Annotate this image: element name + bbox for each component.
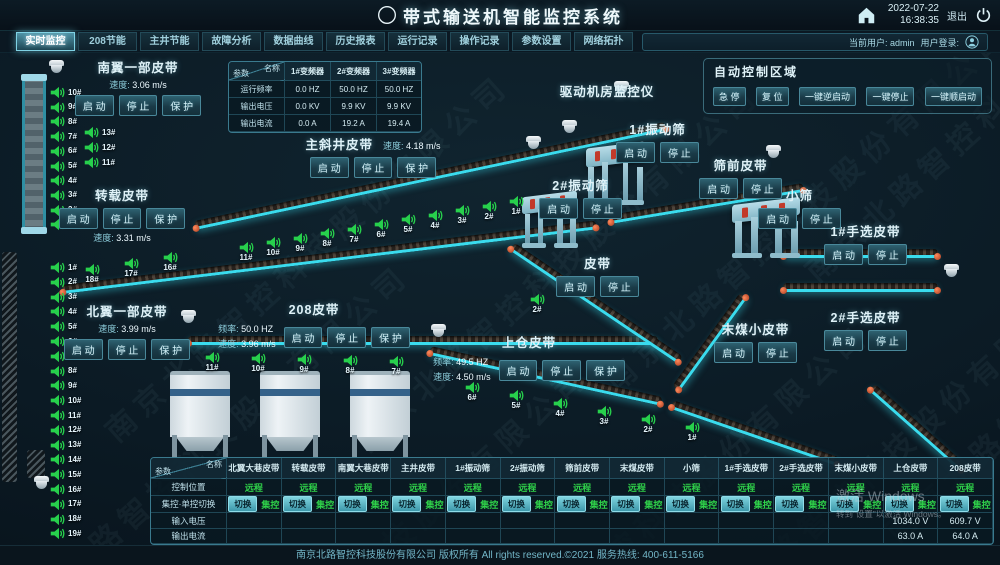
- speaker-indicator: 19#: [50, 527, 81, 540]
- remote-label: 远程: [354, 481, 372, 494]
- belt-label: 小筛: [786, 185, 813, 204]
- logout-button[interactable]: 退出: [947, 8, 967, 23]
- table-col-header: 末煤小皮带: [829, 458, 884, 479]
- table-col-header: 筛前皮带: [555, 458, 610, 479]
- panel-momei: 末煤小皮带启 动停 止: [698, 319, 813, 363]
- info-key: 速度:: [383, 141, 406, 151]
- stop-button[interactable]: 一键停止: [866, 87, 914, 106]
- control-mode-cell: 切换集控: [719, 496, 774, 513]
- belt-status-table: 名称参数北翼大巷皮带转载皮带南翼大巷皮带主井皮带1#振动筛2#振动筛筛前皮带末煤…: [150, 457, 994, 545]
- hopper-body: [260, 371, 320, 437]
- speaker-icon: [50, 130, 65, 143]
- panel-head: 上仓皮带: [448, 332, 610, 351]
- stop-button[interactable]: 停 止: [868, 244, 907, 265]
- protect-button[interactable]: 保 护: [162, 95, 201, 116]
- speaker-indicator: 3#: [591, 405, 617, 426]
- speaker-label: 10#: [68, 397, 81, 405]
- coal-chute: [27, 450, 45, 478]
- speaker-indicator: 8#: [337, 354, 363, 375]
- inverter-value-cell: 9.9 KV: [331, 98, 377, 115]
- speaker-indicator: 7#: [383, 355, 409, 376]
- speaker-label: 10#: [251, 365, 264, 373]
- control-mode-cell: 切换集控: [336, 496, 391, 513]
- speaker-indicator: 5#: [395, 213, 421, 234]
- remote-label: 远程: [737, 481, 755, 494]
- camera-icon[interactable]: [48, 60, 65, 73]
- inverter-col-header: 1#变频器: [285, 62, 331, 81]
- speaker-label: 4#: [68, 177, 77, 185]
- speaker-icon: [50, 261, 65, 274]
- hopper-leg: [172, 435, 177, 457]
- app-logo-icon: [377, 5, 397, 25]
- coal-hopper: [256, 371, 324, 458]
- tab-6[interactable]: 运行记录: [388, 32, 447, 51]
- control-position-cell: 远程: [610, 479, 665, 496]
- user-login-label: 用户登录:: [920, 36, 959, 49]
- panel-shangcang: 上仓皮带频率: 49.5 HZ速度: 4.50 m/s启 动停 止保 护: [448, 332, 610, 383]
- info-value: 3.96 m/s: [241, 339, 276, 349]
- stop-button[interactable]: 停 止: [758, 342, 797, 363]
- power-icon[interactable]: [975, 7, 992, 24]
- switch-button[interactable]: 切换: [721, 496, 750, 512]
- speaker-icon: [50, 453, 65, 466]
- belt-info-label: 速度: 3.31 m/s: [52, 231, 192, 244]
- speaker-indicator: 12#: [50, 424, 81, 437]
- speaker-icon: [482, 200, 497, 213]
- speaker-label: 2#: [644, 426, 653, 434]
- central-mode-label: 集控: [535, 498, 553, 511]
- control-mode-cell: 切换集控: [829, 496, 884, 513]
- voltage-cell: 1034.0 V: [884, 513, 939, 529]
- protect-button[interactable]: 保 护: [397, 157, 436, 178]
- speaker-icon: [50, 513, 65, 526]
- speaker-indicator: 13#: [50, 439, 81, 452]
- switch-button[interactable]: 切换: [392, 496, 421, 512]
- speaker-label: 14#: [68, 456, 81, 464]
- start-button[interactable]: 启 动: [616, 142, 655, 163]
- switch-button[interactable]: 切换: [885, 496, 914, 512]
- stop-button[interactable]: 停 止: [354, 157, 393, 178]
- switch-button[interactable]: 切换: [830, 496, 859, 512]
- camera-icon[interactable]: [430, 324, 447, 337]
- inverter-value-cell: 9.9 KV: [377, 98, 422, 115]
- belt-buttons: 启 动停 止: [808, 244, 923, 265]
- speaker-indicator: 18#: [79, 263, 105, 284]
- start-button[interactable]: 启 动: [59, 208, 98, 229]
- speaker-label: 16#: [163, 264, 176, 272]
- corner-name-label: 名称: [264, 63, 280, 74]
- stop-button[interactable]: 停 止: [103, 208, 142, 229]
- speaker-indicator: 16#: [50, 483, 81, 496]
- screen-base: [770, 253, 800, 258]
- speaker-label: 2#: [533, 306, 542, 314]
- speaker-label: 8#: [68, 367, 77, 375]
- app-title: 带式输送机智能监控系统: [403, 3, 623, 28]
- user-bar: 当前用户: admin 用户登录:: [642, 33, 988, 51]
- current-cell: 64.0 A: [938, 529, 993, 544]
- speaker-label: 7#: [392, 368, 401, 376]
- table-col-header: 上仓皮带: [884, 458, 939, 479]
- panel-head: 筛前皮带: [688, 155, 793, 174]
- speaker-icon: [50, 145, 65, 158]
- control-position-cell: 远程: [282, 479, 337, 496]
- speaker-label: 9#: [300, 366, 309, 374]
- speaker-indicator: 4#: [547, 397, 573, 418]
- info-value: 4.50 m/s: [456, 372, 491, 382]
- speaker-icon: [50, 394, 65, 407]
- camera-dome: [51, 65, 62, 73]
- panel-shouxuan2: 2#手选皮带启 动停 止: [808, 307, 923, 351]
- panel-head: 北翼一部皮带: [62, 301, 192, 320]
- speaker-indicator: 11#: [84, 156, 115, 169]
- switch-button[interactable]: 切换: [502, 496, 531, 512]
- remote-label: 远程: [792, 481, 810, 494]
- speaker-icon: [50, 527, 65, 540]
- speaker-indicator: 9#: [50, 379, 77, 392]
- speaker-label: 2#: [485, 213, 494, 221]
- panel-head: 转载皮带: [52, 185, 192, 204]
- control-mode-cell: 切换集控: [938, 496, 993, 513]
- corner-param-label: 参数: [233, 68, 249, 79]
- voltage-cell: [774, 513, 829, 529]
- inverter-value-cell: 19.2 A: [331, 115, 377, 132]
- home-icon[interactable]: [857, 7, 876, 24]
- stop-button[interactable]: 停 止: [583, 198, 622, 219]
- belt-buttons: 启 动停 止: [545, 276, 650, 297]
- start-button[interactable]: 启 动: [539, 198, 578, 219]
- hopper-leg: [313, 435, 318, 457]
- speaker-indicator: 6#: [50, 145, 77, 158]
- time-label: 16:38:35: [888, 15, 939, 28]
- panel-head: 小筛: [752, 185, 847, 204]
- table-col-header: 2#手选皮带: [774, 458, 829, 479]
- protect-button[interactable]: 保 护: [146, 208, 185, 229]
- table-corner-cell: 名称参数: [229, 62, 285, 81]
- camera-icon[interactable]: [943, 264, 960, 277]
- belt-buttons: 启 动停 止保 护: [499, 360, 625, 381]
- belt-label: 上仓皮带: [502, 332, 556, 351]
- remote-label: 远程: [245, 481, 263, 494]
- speaker-indicator: 6#: [368, 218, 394, 239]
- protect-button[interactable]: 保 护: [151, 339, 190, 360]
- central-mode-label: 集控: [754, 498, 772, 511]
- info-key: 速度:: [109, 80, 132, 90]
- control-position-cell: 远程: [938, 479, 993, 496]
- camera-icon[interactable]: [33, 476, 50, 489]
- current-cell: [774, 529, 829, 544]
- control-position-cell: 远程: [391, 479, 446, 496]
- current-user-label: 当前用户: admin: [849, 36, 915, 49]
- panel-shouxuan1: 1#手选皮带启 动停 止: [808, 221, 923, 265]
- speaker-icon: [347, 223, 362, 236]
- stop-button[interactable]: 停 止: [868, 330, 907, 351]
- speaker-indicator: 11#: [50, 409, 81, 422]
- panel-row: 频率: 50.0 HZ速度: 3.96 m/s启 动停 止保 护: [225, 320, 403, 350]
- speaker-label: 17#: [124, 270, 137, 278]
- vertical-conveyor: [22, 76, 46, 232]
- voltage-cell: [446, 513, 501, 529]
- voltage-cell: [227, 513, 282, 529]
- stop-button[interactable]: 急 停: [713, 87, 746, 106]
- control-position-cell: 远程: [555, 479, 610, 496]
- speaker-label: 6#: [68, 147, 77, 155]
- switch-button[interactable]: 切换: [611, 496, 640, 512]
- speaker-indicator: 7#: [50, 130, 77, 143]
- footer-copyright: 南京北路智控科技股份有限公司 版权所有 All rights reserved.…: [0, 545, 1000, 565]
- start-button[interactable]: 启 动: [714, 342, 753, 363]
- speaker-icon: [50, 439, 65, 452]
- panel-belt208: 208皮带频率: 50.0 HZ速度: 3.96 m/s启 动停 止保 护: [225, 299, 403, 350]
- remote-label: 远程: [409, 481, 427, 494]
- switch-button[interactable]: 切换: [557, 496, 586, 512]
- remote-label: 远程: [901, 481, 919, 494]
- table-col-header: 1#手选皮带: [719, 458, 774, 479]
- screen-base: [554, 243, 578, 248]
- central-mode-label: 集控: [863, 498, 881, 511]
- protect-button[interactable]: 保 护: [371, 327, 410, 348]
- start-button[interactable]: 启 动: [699, 178, 738, 199]
- central-mode-label: 集控: [973, 498, 991, 511]
- switch-button[interactable]: 切换: [940, 496, 969, 512]
- table-col-header: 1#振动筛: [446, 458, 501, 479]
- switch-button[interactable]: 切换: [666, 496, 695, 512]
- voltage-cell: [501, 513, 556, 529]
- speaker-indicator: 3#: [449, 204, 475, 225]
- current-cell: [829, 529, 884, 544]
- remote-label: 远程: [628, 481, 646, 494]
- panel-zhuanzai: 转载皮带启 动停 止保 护速度: 3.31 m/s: [52, 185, 192, 244]
- inverter-value-cell: 19.4 A: [377, 115, 422, 132]
- camera-dome: [433, 329, 444, 337]
- info-value: 50.0 HZ: [241, 324, 273, 334]
- stop-button[interactable]: 停 止: [600, 276, 639, 297]
- speaker-indicator: 17#: [118, 257, 144, 278]
- tab-5[interactable]: 历史报表: [326, 32, 385, 51]
- belt-info-label: 速度: 4.50 m/s: [433, 370, 491, 383]
- start-button[interactable]: 启 动: [758, 208, 797, 229]
- current-cell: [555, 529, 610, 544]
- hopper-funnel: [266, 437, 314, 451]
- hopper-body: [350, 371, 410, 437]
- speaker-label: 11#: [240, 254, 253, 262]
- panel-head: 末煤小皮带: [698, 319, 813, 338]
- speaker-icon: [50, 86, 65, 99]
- voltage-cell: [665, 513, 720, 529]
- current-cell: [336, 529, 391, 544]
- speaker-label: 5#: [404, 226, 413, 234]
- camera-dome: [528, 141, 539, 149]
- tab-1[interactable]: 208节能: [78, 32, 137, 51]
- tab-7[interactable]: 操作记录: [450, 32, 509, 51]
- panel-head: 1#振动筛: [605, 119, 710, 138]
- belt-buttons: 启 动停 止保 护: [288, 157, 458, 178]
- belt-label: 驱动机房监控仪: [560, 81, 655, 100]
- belt-buttons: 启 动停 止保 护: [68, 95, 208, 116]
- switch-button[interactable]: 切换: [775, 496, 804, 512]
- start-button[interactable]: 一键顺启动: [925, 87, 982, 106]
- speaker-indicator: 2#: [476, 200, 502, 221]
- belt-info-label: 速度: 3.96 m/s: [218, 337, 276, 350]
- speaker-indicator: 11#: [233, 241, 259, 262]
- panel-qudong: 驱动机房监控仪: [542, 81, 672, 100]
- auto-control-title: 自动控制区域: [714, 63, 798, 80]
- corner-name-label: 名称: [206, 459, 222, 470]
- table-col-header: 转载皮带: [282, 458, 337, 479]
- remote-label: 远程: [847, 481, 865, 494]
- inverter-value-cell: 0.0 KV: [285, 98, 331, 115]
- reset-button[interactable]: 复 位: [756, 87, 789, 106]
- belt-label: 末煤小皮带: [722, 319, 790, 338]
- start-button[interactable]: 一键逆启动: [799, 87, 856, 106]
- user-avatar-icon[interactable]: [965, 35, 979, 49]
- belt-info-label: 频率: 49.5 HZ: [433, 355, 491, 368]
- current-cell: [446, 529, 501, 544]
- panel-pidai: 皮带启 动停 止: [545, 253, 650, 297]
- speaker-icon: [50, 365, 65, 378]
- camera-dome: [36, 481, 47, 489]
- belt-buttons: 启 动停 止: [528, 198, 633, 219]
- speaker-label: 13#: [102, 129, 115, 137]
- speaker-icon: [50, 424, 65, 437]
- tab-8[interactable]: 参数设置: [512, 32, 571, 51]
- tab-9[interactable]: 网络拓扑: [574, 32, 633, 51]
- screen-base: [522, 243, 546, 248]
- speaker-indicator: 14#: [50, 453, 81, 466]
- central-mode-label: 集控: [808, 498, 826, 511]
- control-mode-cell: 切换集控: [884, 496, 939, 513]
- hopper-funnel: [176, 437, 224, 451]
- control-position-cell: 远程: [884, 479, 939, 496]
- tab-list: 实时监控208节能主井节能故障分析数据曲线历史报表运行记录操作记录参数设置网络拓…: [16, 32, 636, 51]
- info-value: 49.5 HZ: [456, 357, 488, 367]
- current-cell: [501, 529, 556, 544]
- start-button[interactable]: 启 动: [556, 276, 595, 297]
- speaker-label: 11#: [68, 412, 81, 420]
- switch-button[interactable]: 切换: [228, 496, 257, 512]
- control-mode-cell: 切换集控: [446, 496, 501, 513]
- speaker-label: 1#: [688, 434, 697, 442]
- hopper-band: [170, 389, 230, 396]
- tab-0[interactable]: 实时监控: [16, 32, 75, 51]
- start-button[interactable]: 启 动: [75, 95, 114, 116]
- belt-info-label: 速度: 3.06 m/s: [68, 78, 208, 91]
- camera-dome: [946, 269, 957, 277]
- start-button[interactable]: 启 动: [824, 330, 863, 351]
- switch-button[interactable]: 切换: [447, 496, 476, 512]
- current-cell: [665, 529, 720, 544]
- speaker-label: 3#: [600, 418, 609, 426]
- control-mode-cell: 切换集控: [282, 496, 337, 513]
- start-button[interactable]: 启 动: [310, 157, 349, 178]
- camera-icon[interactable]: [525, 136, 542, 149]
- speaker-icon: [84, 126, 99, 139]
- remote-label: 远程: [464, 481, 482, 494]
- central-mode-label: 集控: [425, 498, 443, 511]
- speaker-label: 7#: [350, 236, 359, 244]
- speaker-indicator: 13#: [84, 126, 115, 139]
- remote-label: 远程: [300, 481, 318, 494]
- panel-row: 频率: 49.5 HZ速度: 4.50 m/s启 动停 止保 护: [448, 353, 610, 383]
- table-col-header: 2#振动筛: [501, 458, 556, 479]
- central-mode-label: 集控: [590, 498, 608, 511]
- coal-hopper: [166, 371, 234, 458]
- switch-button[interactable]: 切换: [338, 496, 367, 512]
- belt-info-column: 频率: 49.5 HZ速度: 4.50 m/s: [433, 353, 491, 383]
- stop-button[interactable]: 停 止: [119, 95, 158, 116]
- tab-2[interactable]: 主井节能: [140, 32, 199, 51]
- panel-head: 2#手选皮带: [808, 307, 923, 326]
- speaker-indicator: 9#: [291, 353, 317, 374]
- current-cell: [227, 529, 282, 544]
- belt-buttons: 启 动停 止: [808, 330, 923, 351]
- info-key: 速度:: [433, 372, 456, 382]
- speaker-indicator: 8#: [50, 115, 77, 128]
- speaker-label: 5#: [68, 162, 77, 170]
- tab-3[interactable]: 故障分析: [202, 32, 261, 51]
- speaker-icon: [50, 498, 65, 511]
- speaker-indicator: 6#: [459, 381, 485, 402]
- switch-button[interactable]: 切换: [283, 496, 312, 512]
- auto-control-panel: 自动控制区域 急 停复 位一键逆启动一键停止一键顺启动: [703, 58, 992, 114]
- speaker-label: 12#: [102, 144, 115, 152]
- speaker-label: 1#: [68, 264, 77, 272]
- speaker-indicator: 1#: [679, 421, 705, 442]
- table-col-header: 南翼大巷皮带: [336, 458, 391, 479]
- start-button[interactable]: 启 动: [824, 244, 863, 265]
- current-cell: [610, 529, 665, 544]
- belt-label: 筛前皮带: [713, 155, 767, 174]
- voltage-cell: [282, 513, 337, 529]
- camera-icon[interactable]: [561, 120, 578, 133]
- hopper-leg: [403, 435, 408, 457]
- speaker-icon: [50, 115, 65, 128]
- protect-button[interactable]: 保 护: [586, 360, 625, 381]
- stop-button[interactable]: 停 止: [108, 339, 147, 360]
- stop-button[interactable]: 停 止: [542, 360, 581, 381]
- hopper-band: [350, 389, 410, 396]
- speaker-label: 12#: [68, 426, 81, 434]
- datetime-display: 2022-07-22 16:38:35: [888, 3, 939, 28]
- panel-head: 主斜井皮带速度: 4.18 m/s: [288, 134, 458, 153]
- tab-4[interactable]: 数据曲线: [264, 32, 323, 51]
- speaker-indicator: 8#: [314, 227, 340, 248]
- speaker-label: 4#: [556, 410, 565, 418]
- auto-control-buttons: 急 停复 位一键逆启动一键停止一键顺启动: [704, 87, 991, 106]
- start-button[interactable]: 启 动: [499, 360, 538, 381]
- start-button[interactable]: 启 动: [64, 339, 103, 360]
- speaker-label: 8#: [68, 118, 77, 126]
- control-position-cell: 远程: [665, 479, 720, 496]
- control-position-cell: 远程: [719, 479, 774, 496]
- belt-label: 2#手选皮带: [831, 307, 901, 326]
- speaker-indicator: 5#: [50, 160, 77, 173]
- table-row-label: 集控·单控切换: [151, 496, 227, 513]
- camera-dome: [564, 125, 575, 133]
- stop-button[interactable]: 停 止: [327, 327, 366, 348]
- speaker-indicator: 10#: [245, 352, 271, 373]
- speaker-label: 17#: [68, 500, 81, 508]
- speaker-icon: [84, 141, 99, 154]
- voltage-cell: [719, 513, 774, 529]
- inverter-col-header: 3#变频器: [377, 62, 422, 81]
- belt-label: 1#振动筛: [629, 119, 685, 138]
- start-button[interactable]: 启 动: [284, 327, 323, 348]
- belt-label: 皮带: [584, 253, 611, 272]
- control-mode-cell: 切换集控: [555, 496, 610, 513]
- control-mode-cell: 切换集控: [391, 496, 446, 513]
- central-mode-label: 集控: [918, 498, 936, 511]
- voltage-cell: [610, 513, 665, 529]
